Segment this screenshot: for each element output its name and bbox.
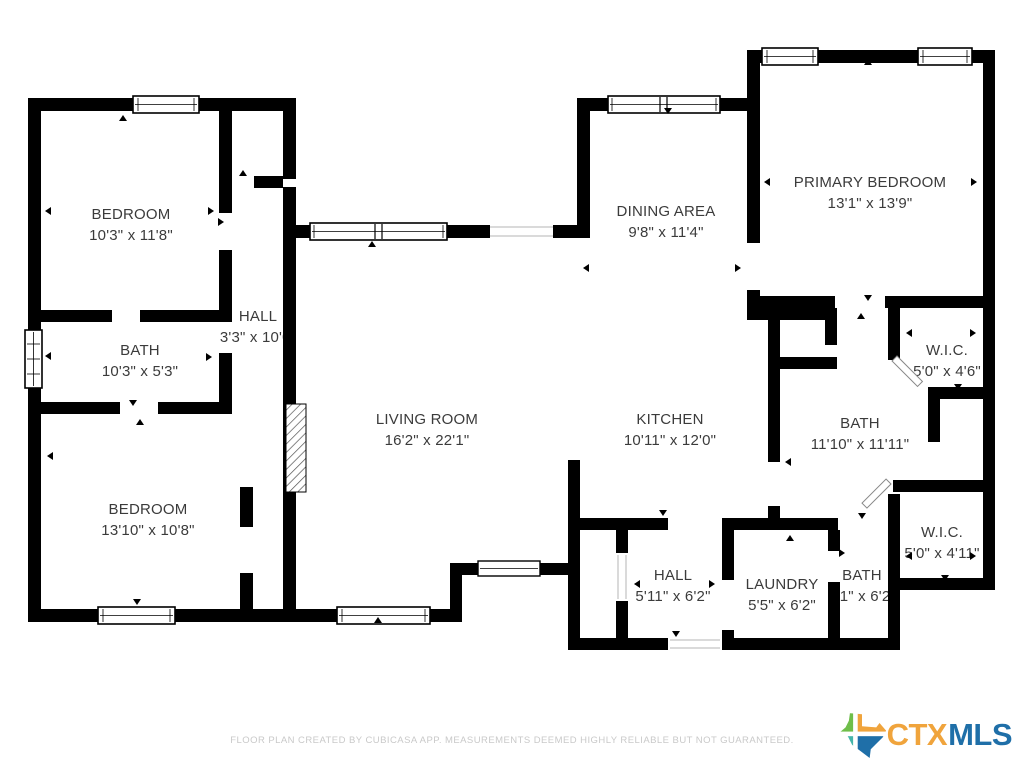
room-label-hall-bottom: HALL 5'11" x 6'2" (635, 565, 710, 607)
window (133, 96, 199, 113)
double-window (310, 223, 447, 240)
wic-bottom-door (862, 479, 891, 508)
logo-text: CTXMLS (887, 711, 1012, 759)
room-label-hall-upper: HALL 3'3" x 10'0" (220, 306, 296, 348)
room-label-primary-bedroom: PRIMARY BEDROOM 13'1" x 13'9" (794, 172, 946, 214)
room-label-bedroom-top-left: BEDROOM 10'3" x 11'8" (89, 204, 173, 246)
room-label-kitchen: KITCHEN 10'11" x 12'0" (624, 409, 716, 451)
floorplan-drawing (0, 0, 1024, 768)
room-label-bedroom-bottom-left: BEDROOM 13'10" x 10'8" (101, 499, 194, 541)
ctxmls-logo: CTXMLS (837, 711, 1012, 759)
window (98, 607, 175, 624)
window (478, 561, 540, 576)
logo-text-mls: MLS (948, 717, 1012, 752)
room-label-bath-right: BATH 11'10" x 11'11" (811, 413, 910, 455)
room-label-bath-left: BATH 10'3" x 5'3" (102, 340, 178, 382)
room-label-bath-bottom: BATH 3'1" x 6'2" (828, 565, 896, 607)
floorplan-page: { "rooms": [ {"id":"bedroom-top-left","n… (0, 0, 1024, 768)
room-label-dining-area: DINING AREA 9'8" x 11'4" (617, 201, 716, 243)
room-label-wic-bottom: W.I.C. 5'0" x 4'11" (904, 522, 979, 564)
room-label-living-room: LIVING ROOM 16'2" x 22'1" (376, 409, 478, 451)
window (337, 607, 430, 624)
texas-state-icon (837, 712, 887, 758)
hatched-wall-element (286, 404, 306, 492)
double-window (608, 96, 720, 113)
room-label-laundry: LAUNDRY 5'5" x 6'2" (746, 574, 819, 616)
door-direction-markers (45, 59, 977, 637)
logo-text-ctx: CTX (887, 717, 948, 752)
room-label-wic-top: W.I.C. 5'0" x 4'6" (913, 340, 981, 382)
window (918, 48, 972, 65)
window (762, 48, 818, 65)
wall-notch (283, 179, 296, 187)
window (25, 330, 42, 388)
